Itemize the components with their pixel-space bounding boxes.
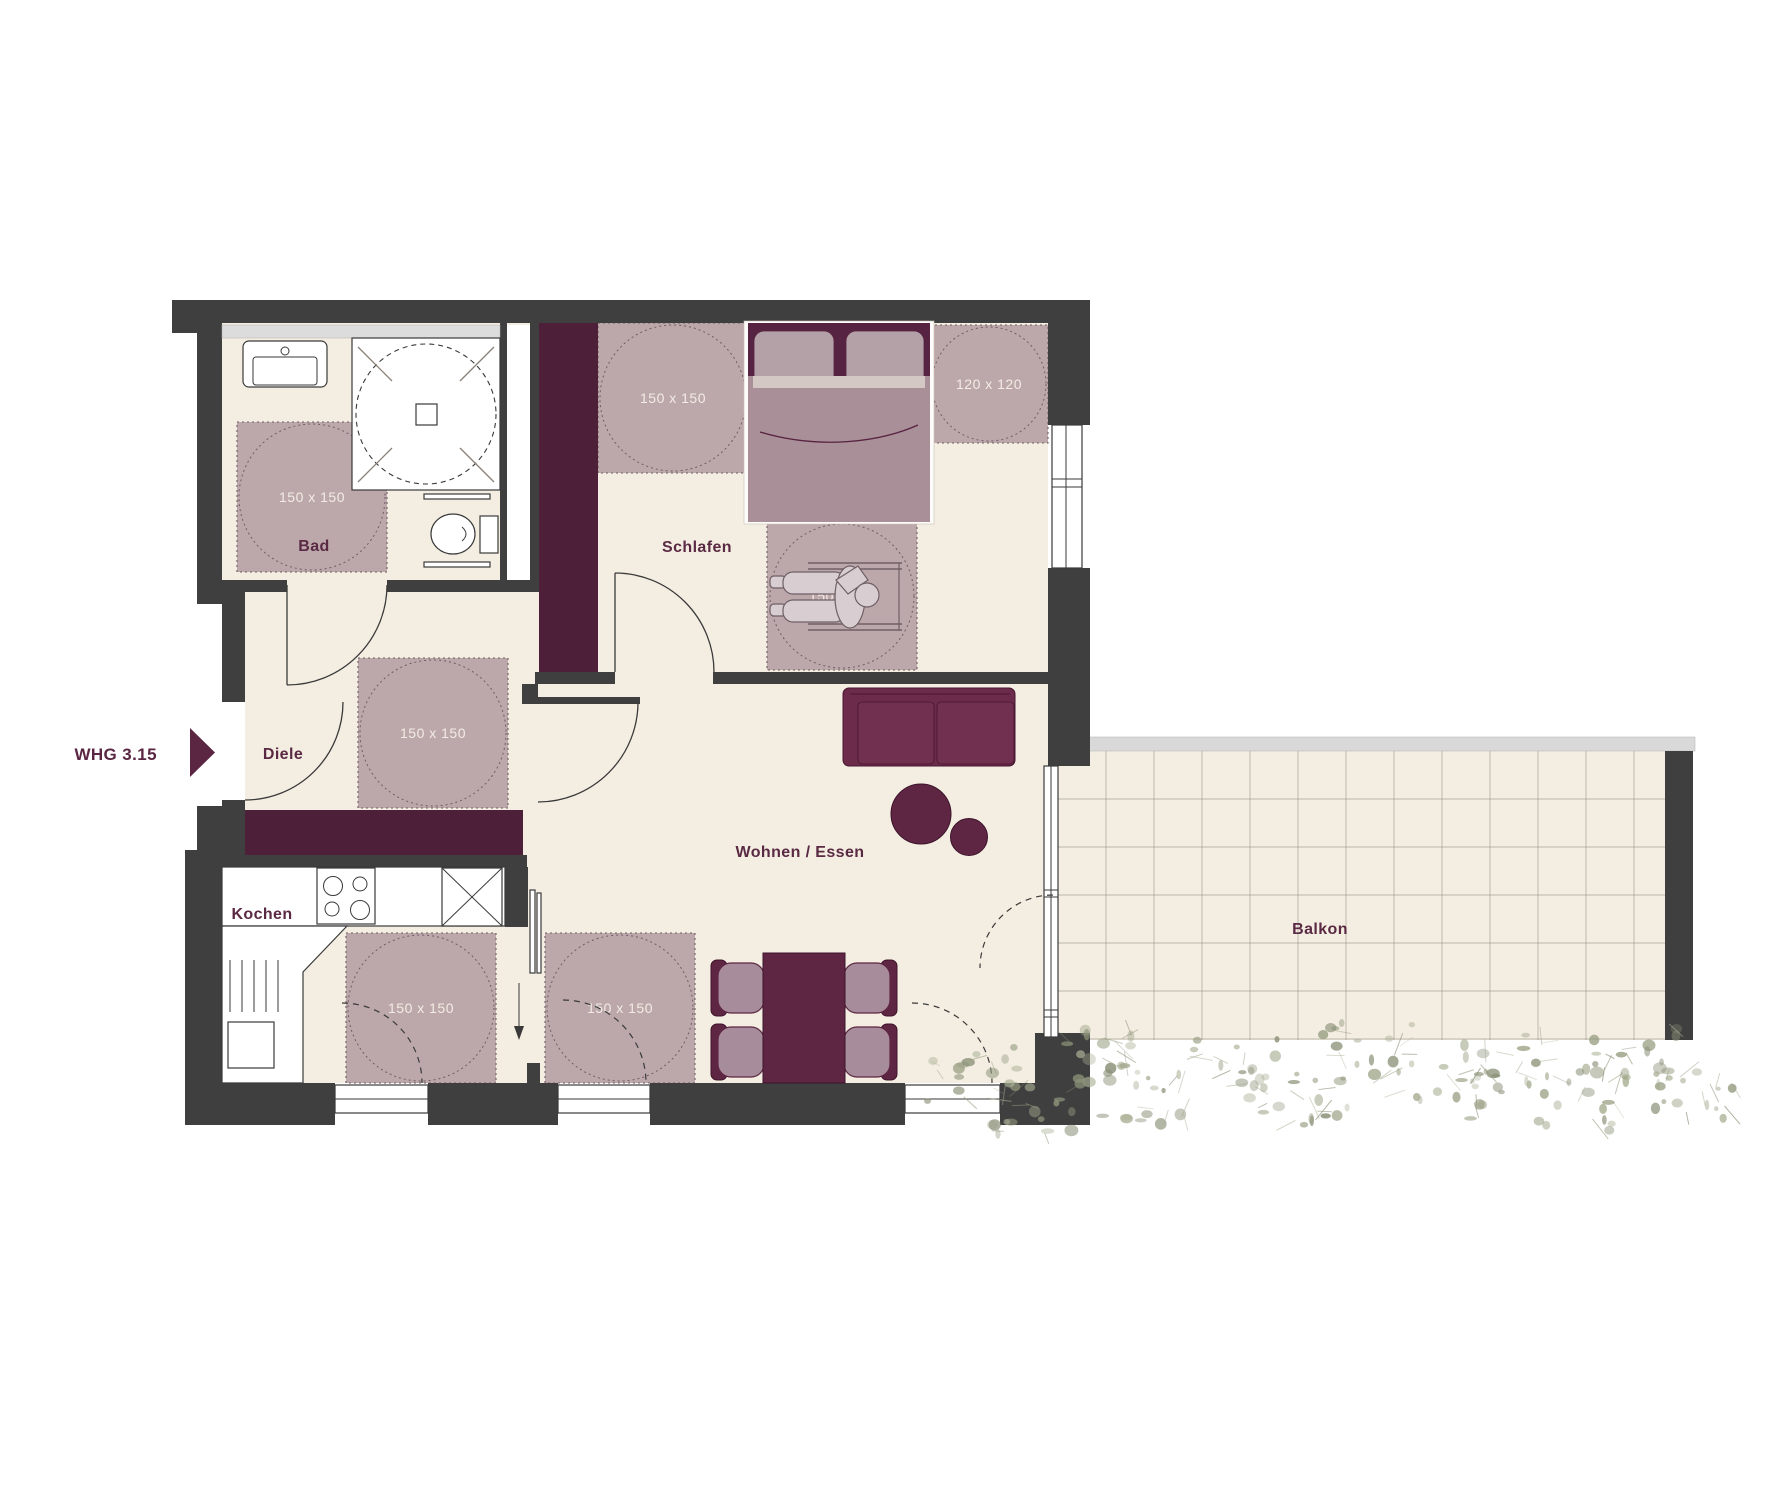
blanket [748,376,930,522]
sofa [843,688,1015,766]
entrance-marker: WHG 3.15 [74,728,215,777]
chair [711,960,764,1016]
wall-shaft-east [530,323,539,580]
room-label-bad: Bad [298,538,329,555]
wall-kochen-notch [527,1063,540,1083]
kitchen-sink-icon [228,1022,274,1068]
clearance-diele: 150 x 150 [358,658,508,808]
wall-west-bad [197,300,222,604]
wall-top [197,300,1090,323]
bath-wall-strip [222,325,500,338]
room-label-balkon: Balkon [1292,921,1348,938]
coffee-table [891,784,951,844]
room-label-diele: Diele [263,746,303,763]
clearance-schlafen-window: 120 x 120 [930,325,1048,443]
clearance-label: 120 x 120 [956,376,1022,392]
wall-bad-east [500,323,507,580]
clearance-schlafen: 150 x 150 [598,323,748,473]
shaft [507,325,530,580]
sink-icon [243,341,327,387]
floor-plan: 150 x 150 150 x 150 150 x 150 120 x 120 … [0,0,1774,1500]
entrance-opening [222,702,245,800]
chair [844,960,897,1016]
clearance-label: 150 x 150 [279,489,345,505]
window-wohnen [905,1085,1000,1113]
wall-west-diele-upper [222,592,245,702]
dining-table [763,953,845,1083]
wall-west-kochen [185,850,222,1083]
wall-bottom-b [428,1083,558,1125]
side-table [951,819,988,856]
clearance-label: 150 x 150 [640,390,706,406]
wardrobe-schlafen [539,323,598,672]
wardrobe-diele [245,810,523,855]
room-label-wohnen-essen: Wohnen / Essen [736,844,865,861]
window-balcony-glass [1044,766,1058,1037]
apartment-id-label: WHG 3.15 [74,745,157,764]
wall-diele-kochen [217,855,527,867]
stove-icon [317,868,375,924]
wall-diele-se-stub [522,684,538,704]
clearance-label: 150 x 150 [400,725,466,741]
balcony [1058,737,1695,1040]
balcony-railing [1085,737,1695,751]
wall-west-diele-lower [222,798,245,858]
window-kochen [335,1085,428,1113]
floor-plan-svg: 150 x 150 150 x 150 150 x 150 120 x 120 … [0,0,1774,1500]
wall-bottom-c [650,1083,905,1125]
clearance-label: 150 x 150 [388,1000,454,1016]
shower-icon [352,338,500,490]
chair [711,1024,764,1080]
entrance-arrow-icon [190,728,215,777]
wall-bottom-a [185,1083,335,1125]
room-label-schlafen: Schlafen [662,539,732,556]
clearance-essen-window: 150 x 150 [545,933,695,1083]
window-essen [558,1085,650,1113]
wall-schlafen-south-b [713,672,1048,684]
room-label-kochen: Kochen [231,906,292,923]
wall-bad-south-b [387,580,539,592]
head [855,583,879,607]
chair [844,1024,897,1080]
wall-east-upper [1048,300,1090,425]
wall-top-left-step [172,300,197,333]
wall-diele-wohnen [538,697,640,704]
kitchen-unit-x-icon [442,868,502,926]
wall-schlafen-south-a [535,672,615,684]
balcony-right-wall [1665,751,1693,1040]
wall-east-mid [1048,568,1090,766]
bed [744,321,934,524]
balcony-floor [1058,751,1665,1040]
wall-bad-south-a [222,580,287,592]
wall-kochen-east-stub [505,867,528,927]
window-schlafen-east [1052,425,1082,568]
clearance-label: 150 x 150 [587,1000,653,1016]
